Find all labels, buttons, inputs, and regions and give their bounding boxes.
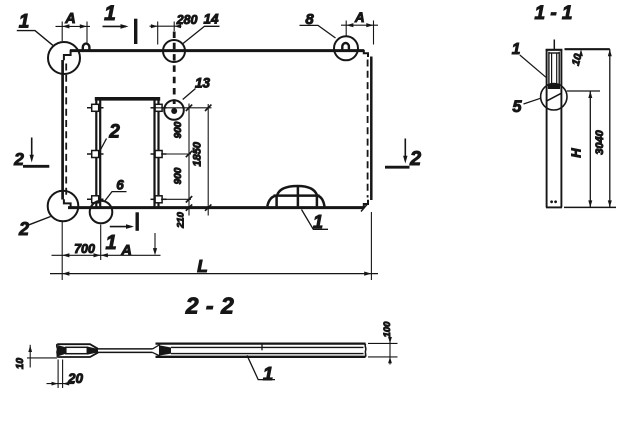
svg-text:2: 2 <box>409 148 421 170</box>
svg-text:700: 700 <box>74 242 95 256</box>
svg-text:900: 900 <box>173 167 184 184</box>
svg-text:1: 1 <box>104 2 116 25</box>
svg-text:5: 5 <box>512 98 522 116</box>
svg-text:900: 900 <box>173 121 184 138</box>
svg-text:2: 2 <box>13 149 24 169</box>
svg-text:1: 1 <box>263 363 273 384</box>
svg-text:1: 1 <box>105 232 116 254</box>
svg-text:6: 6 <box>116 177 124 192</box>
svg-text:1: 1 <box>512 41 521 58</box>
svg-text:2 - 2: 2 - 2 <box>185 292 235 318</box>
svg-text:13: 13 <box>195 75 211 90</box>
svg-text:1 - 1: 1 - 1 <box>534 3 572 24</box>
svg-text:2: 2 <box>108 121 120 142</box>
svg-text:A: A <box>354 10 365 25</box>
svg-text:8: 8 <box>305 11 314 28</box>
svg-text:A: A <box>64 11 75 27</box>
svg-text:2: 2 <box>18 219 29 239</box>
svg-text:A: A <box>120 242 132 259</box>
svg-text:10: 10 <box>15 358 26 370</box>
svg-text:3040: 3040 <box>594 129 606 154</box>
svg-text:H: H <box>569 148 584 158</box>
svg-text:20: 20 <box>67 371 84 386</box>
svg-text:1: 1 <box>313 212 323 232</box>
svg-text:280: 280 <box>176 13 198 27</box>
svg-text:100: 100 <box>382 321 393 338</box>
svg-text:210: 210 <box>176 211 187 229</box>
svg-text:L: L <box>197 256 208 276</box>
svg-text:1850: 1850 <box>191 141 203 166</box>
svg-text:1: 1 <box>19 12 30 33</box>
svg-text:14: 14 <box>203 11 219 26</box>
